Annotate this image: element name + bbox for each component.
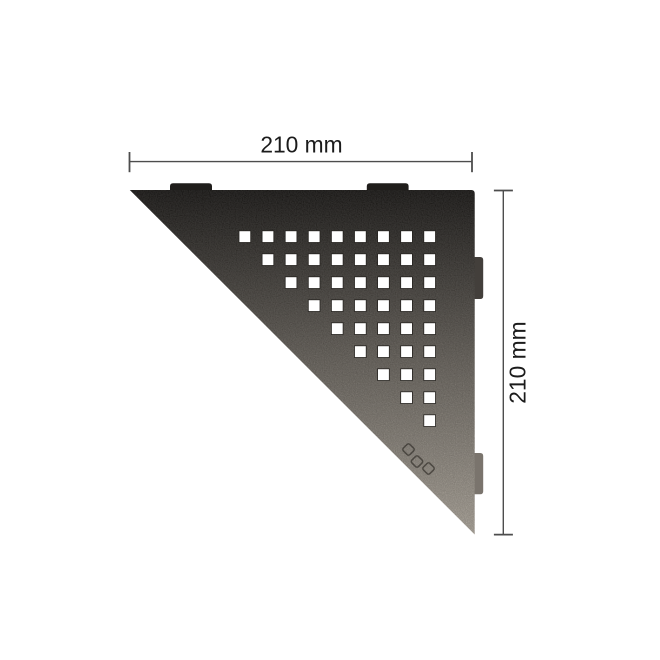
svg-text:210 mm: 210 mm	[260, 131, 342, 157]
svg-text:210 mm: 210 mm	[505, 321, 531, 403]
